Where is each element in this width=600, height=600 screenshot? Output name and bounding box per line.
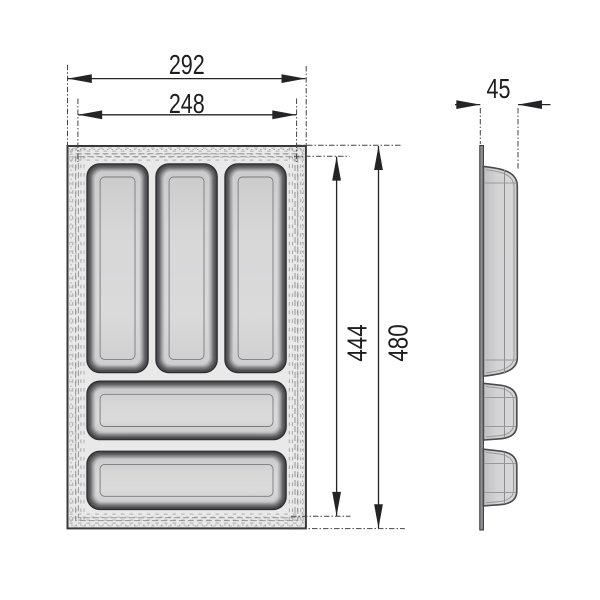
svg-text:480: 480 — [383, 324, 414, 361]
svg-text:444: 444 — [342, 324, 373, 361]
svg-text:45: 45 — [487, 73, 511, 104]
svg-text:248: 248 — [169, 89, 205, 120]
svg-text:292: 292 — [169, 50, 205, 81]
